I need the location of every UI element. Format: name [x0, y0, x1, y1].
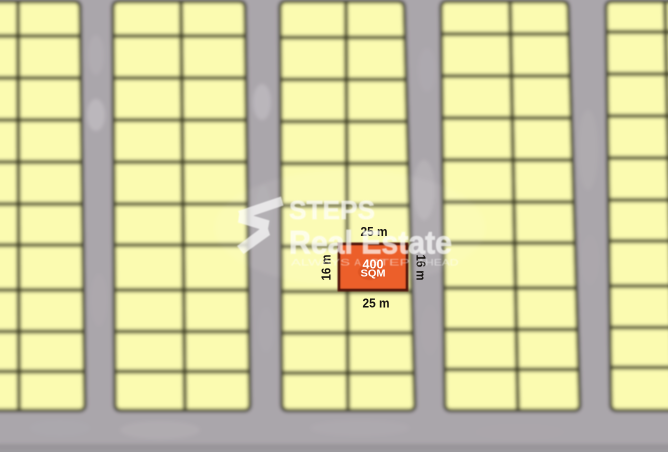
svg-text:STEPS: STEPS — [289, 195, 375, 225]
svg-text:25 m: 25 m — [363, 296, 390, 311]
svg-text:Real Estate: Real Estate — [289, 225, 452, 261]
svg-text:A: A — [355, 258, 362, 268]
svg-text:ALWAYS: ALWAYS — [291, 258, 350, 268]
svg-text:SQM: SQM — [361, 269, 386, 280]
svg-text:AHEAD: AHEAD — [417, 258, 459, 268]
svg-text:STEP: STEP — [369, 258, 410, 268]
